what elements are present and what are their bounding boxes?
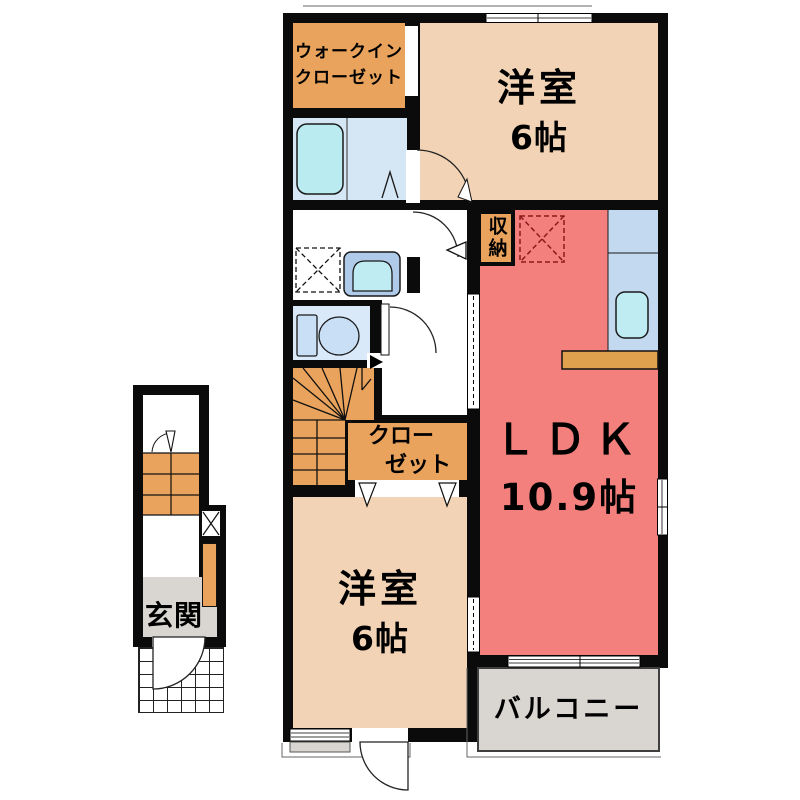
entrance-door-opening <box>152 637 204 647</box>
walk-in-closet-label: ウォークイン クローゼット <box>295 40 403 91</box>
room-closet: クロー ゼット <box>348 423 467 480</box>
bedroom-bottom-size: 6帖 <box>351 618 409 659</box>
room-storage: 収納 <box>477 210 515 266</box>
closet-label: クロー ゼット <box>348 423 467 480</box>
entrance-stair-landing <box>143 395 199 453</box>
closet-label-line1: クロー <box>348 423 467 452</box>
closet-label-line2: ゼット <box>348 452 467 481</box>
ldk-label: ＬＤＫ <box>494 414 644 467</box>
room-walk-in-closet: ウォークイン クローゼット <box>293 23 405 108</box>
walk-in-closet-label-line2: クローゼット <box>295 68 403 88</box>
entrance-label: 玄関 <box>143 598 203 637</box>
walk-in-closet-label-line1: ウォークイン <box>295 42 403 62</box>
bedroom-bottom-label: 洋室 <box>338 566 422 614</box>
room-toilet <box>293 306 370 360</box>
staircase-upper-run <box>293 368 374 420</box>
ldk-size: 10.9帖 <box>494 475 644 521</box>
bedroom-top-door-opening <box>406 150 420 203</box>
washroom-door-opening <box>404 210 420 257</box>
storage-label: 収納 <box>487 216 506 260</box>
entrance-hallway <box>143 515 199 577</box>
bedroom-top-label: 洋室 <box>497 65 581 113</box>
shoe-cabinet <box>202 543 217 607</box>
balcony: バルコニー <box>477 667 660 752</box>
room-bedroom-top: 洋室 6帖 <box>420 23 658 200</box>
hall-lower <box>382 293 467 415</box>
bedroom-bottom-exterior-door-arc <box>360 742 408 790</box>
staircase-lower-run <box>293 420 345 485</box>
hall-upper <box>420 210 467 293</box>
walk-in-closet-door-opening <box>405 26 418 96</box>
room-bedroom-bottom: 洋室 6帖 <box>293 497 467 728</box>
entrance-small-window <box>202 511 220 536</box>
bedroom-top-size: 6帖 <box>510 117 568 158</box>
kitchen-unit <box>608 210 658 352</box>
balcony-label: バルコニー <box>494 693 643 727</box>
bedroom-bottom-door-opening <box>352 728 408 742</box>
floor-plan: ウォークイン クローゼット 洋室 6帖 ＬＤＫ 10.9帖 収納 クロー ゼット… <box>0 0 800 800</box>
room-bathroom <box>293 118 407 200</box>
closet-door-opening <box>355 480 459 497</box>
entrance-porch-tiles <box>138 647 224 713</box>
room-washroom <box>293 210 407 300</box>
entrance-staircase <box>143 453 199 515</box>
